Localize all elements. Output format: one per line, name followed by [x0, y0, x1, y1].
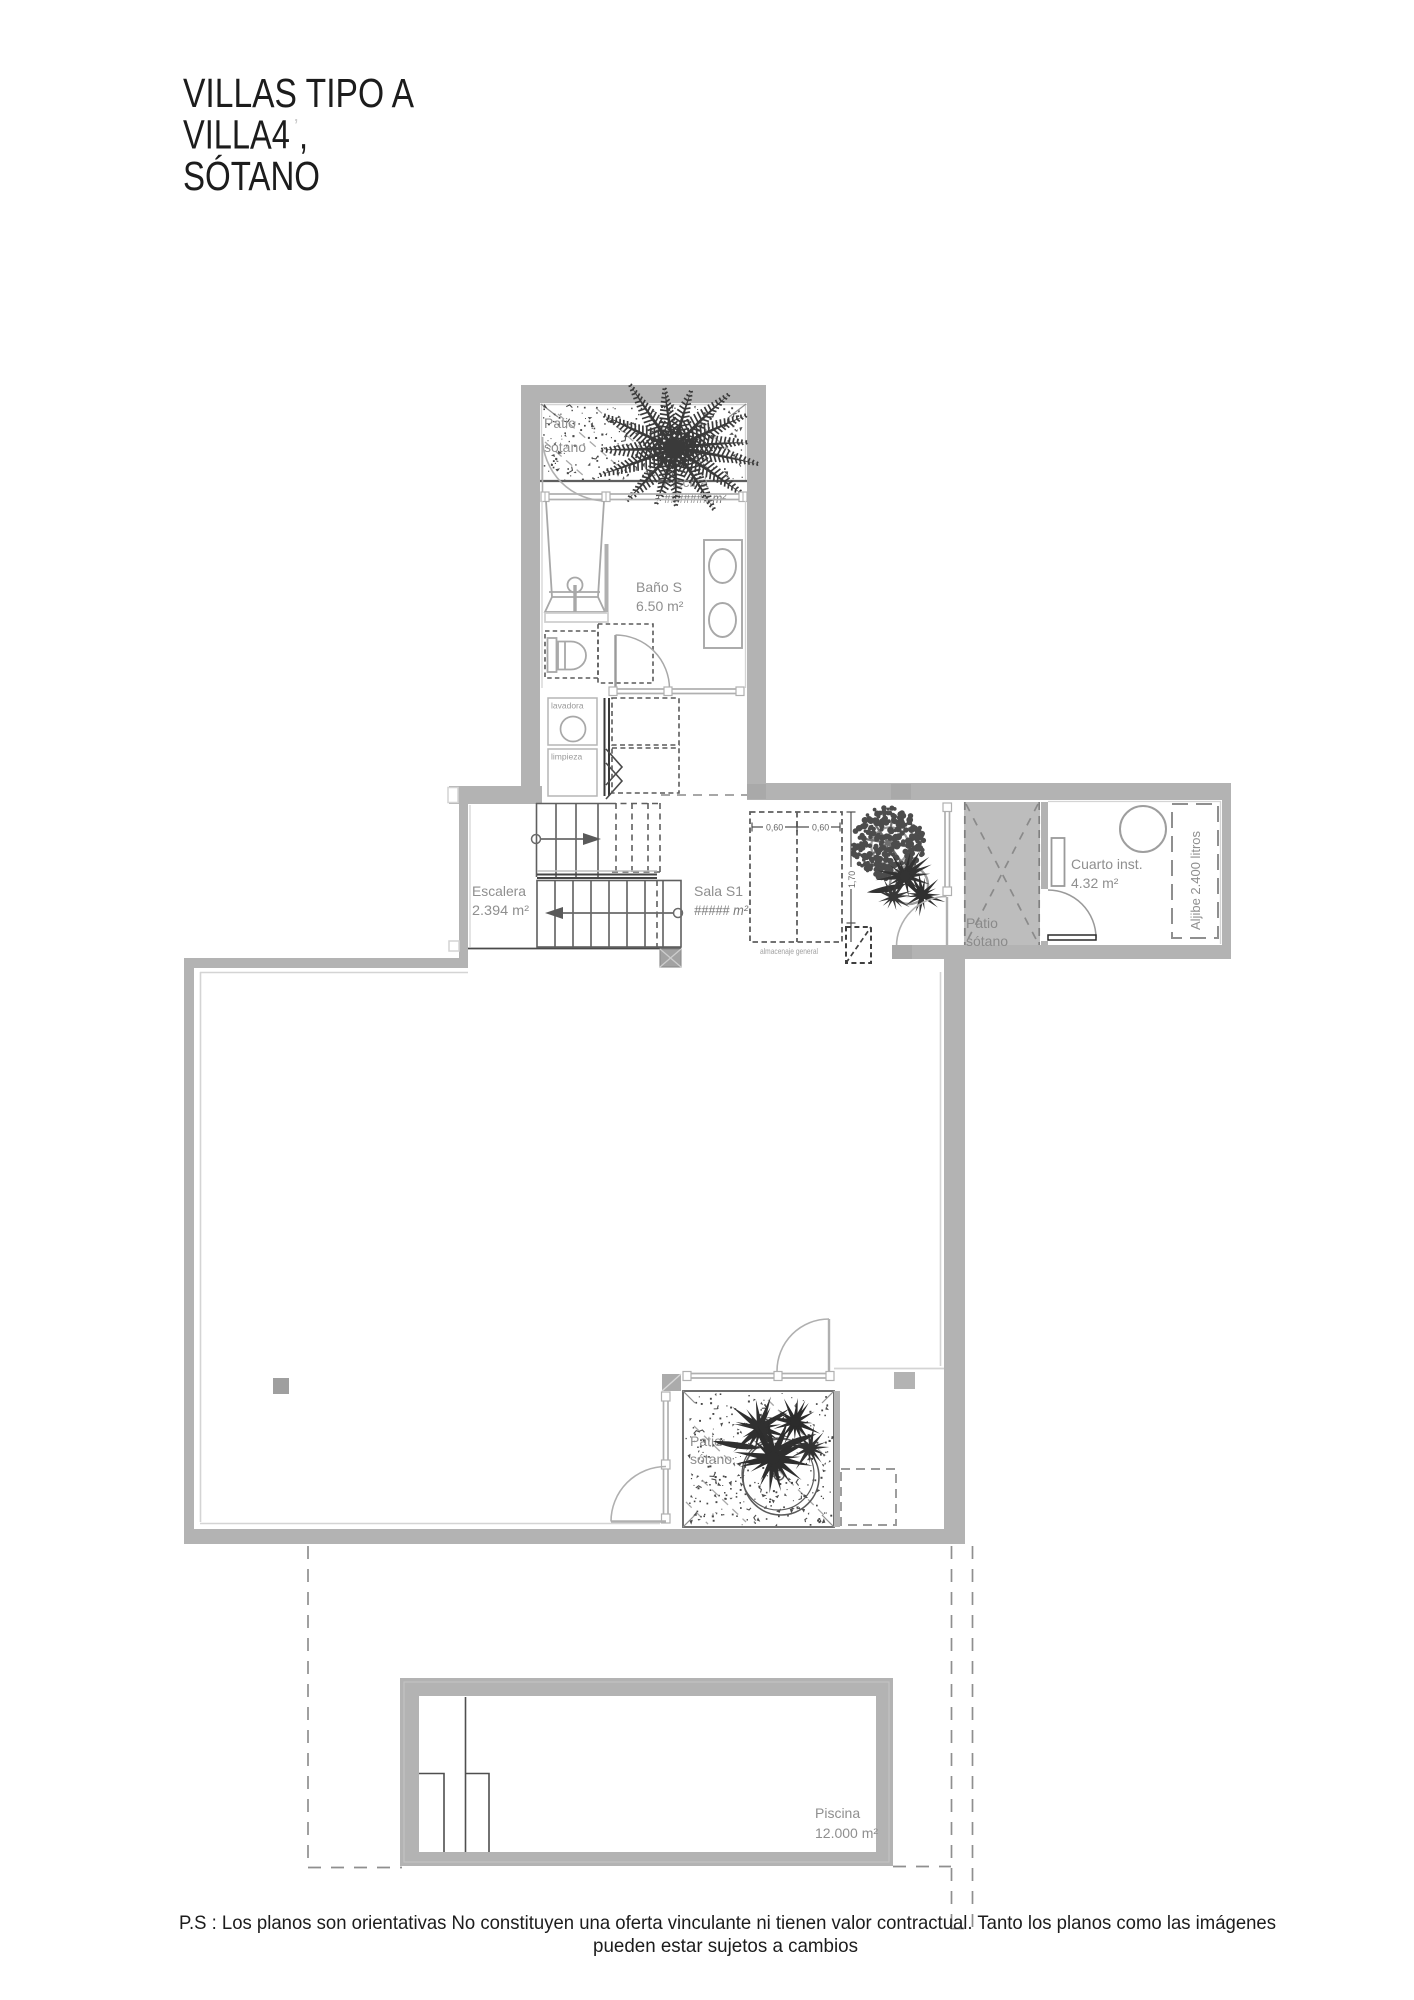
svg-text:6.50 m²: 6.50 m²	[636, 598, 684, 614]
svg-text:VILLAS TIPO A: VILLAS TIPO A	[183, 70, 414, 116]
svg-text:2.394 m²: 2.394 m²	[472, 902, 529, 918]
svg-text:Escalera: Escalera	[472, 883, 526, 899]
svg-text:P.S : Los planos son orientati: P.S : Los planos son orientativas No con…	[179, 1912, 1276, 1934]
svg-text:Piscina: Piscina	[815, 1805, 860, 1821]
svg-text:lavadora: lavadora	[551, 701, 584, 711]
svg-text:Sala S1: Sala S1	[694, 883, 743, 899]
svg-text:4.32 m²: 4.32 m²	[1071, 875, 1119, 891]
svg-text:Cuarto inst.: Cuarto inst.	[1071, 856, 1143, 872]
svg-text:0,60: 0,60	[766, 823, 783, 833]
svg-text:VILLA4 ,: VILLA4 ,	[183, 112, 308, 158]
svg-text:ʼ: ʼ	[294, 117, 298, 139]
svg-text:limpieza: limpieza	[551, 752, 582, 762]
svg-text:Baño S: Baño S	[636, 579, 682, 595]
svg-text:sótano: sótano	[544, 439, 586, 455]
svg-text:sótano: sótano	[966, 933, 1008, 949]
svg-text:12.000 m²: 12.000 m²	[815, 1825, 878, 1841]
svg-text:Patio: Patio	[966, 915, 998, 931]
svg-text:##### m²: ##### m²	[694, 902, 749, 918]
svg-text:SÓTANO: SÓTANO	[183, 153, 320, 199]
svg-text:Aljibe 2.400 litros: Aljibe 2.400 litros	[1188, 831, 1203, 930]
svg-text:1,70: 1,70	[847, 871, 857, 888]
svg-text:pueden estar sujetos a cambios: pueden estar sujetos a cambios	[593, 1935, 858, 1957]
svg-text:Patio: Patio	[690, 1433, 722, 1449]
svg-text:0,60: 0,60	[812, 823, 829, 833]
svg-text:sótano: sótano	[690, 1451, 732, 1467]
svg-text:almacenaje general: almacenaje general	[760, 946, 818, 956]
svg-text:Patio: Patio	[544, 415, 576, 431]
